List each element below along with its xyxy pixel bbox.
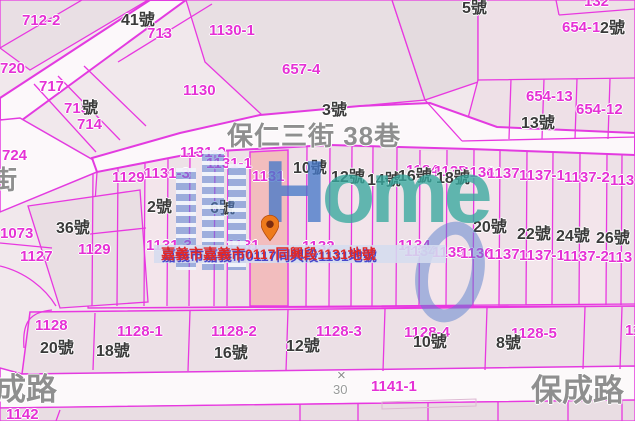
parcel-number-label: 712-2	[22, 13, 60, 29]
parcel-number-label: 113	[610, 173, 634, 189]
parcel-number-label: 654-1	[562, 20, 600, 36]
parcel-number-label: 1131-1	[206, 156, 252, 172]
house-number-label: 14號	[367, 173, 401, 190]
house-number-label: 10號	[293, 161, 327, 178]
selected-parcel-caption: 嘉義市嘉義市0117同興段1131地號	[154, 244, 376, 264]
house-number-label: 8號	[496, 336, 521, 353]
house-number-label: 16號	[214, 346, 248, 363]
parcel-number-label: 654-13	[526, 89, 573, 105]
parcel-number-label: 1137-1	[519, 168, 565, 184]
parcel-number-label: 113	[608, 250, 632, 266]
selected-parcel-caption-band: 嘉義市嘉義市0117同興段1131地號	[154, 245, 446, 263]
parcel-number-label: 1128-1	[117, 324, 163, 340]
parcel-number-label: 720	[0, 61, 25, 77]
house-number-label: 2號	[600, 21, 625, 38]
house-number-label: 18號	[96, 344, 130, 361]
parcel-number-label: 714	[77, 117, 102, 133]
parcel-number-label: 1073	[0, 226, 33, 242]
parcel-number-label: 1127	[20, 249, 53, 265]
parcel-number-label: 1141-1	[371, 379, 417, 395]
house-number-label: 20號	[40, 341, 74, 358]
house-number-label: 41號	[121, 13, 155, 30]
parcel-number-label: 654-12	[576, 102, 623, 118]
house-number-label: 12號	[331, 170, 365, 187]
parcel-number-label: 717	[39, 79, 64, 95]
parcel-number-label: 1131-3	[144, 166, 190, 182]
house-number-label: 20號	[473, 220, 507, 237]
street-name-left-partial: 街	[0, 160, 17, 197]
parcel-labels-layer: 712-27137207177157147241130-11130657-413…	[0, 0, 635, 421]
house-number-label: 10號	[413, 335, 447, 352]
parcel-number-label: 1137-2	[564, 170, 610, 186]
parcel-number-label: 1137-1	[519, 248, 565, 264]
survey-point-number: 30	[333, 382, 347, 397]
location-pin-icon[interactable]	[261, 214, 279, 242]
house-number-label: 5號	[462, 1, 487, 18]
parcel-number-label: 11	[625, 323, 635, 339]
parcel-number-label: 1128-3	[316, 324, 362, 340]
parcel-number-label: 1131	[252, 169, 285, 185]
parcel-number-label: 132	[584, 0, 609, 10]
parcel-number-label: 1137	[487, 166, 520, 182]
parcel-number-label: 1128	[35, 318, 68, 334]
house-number-label: 6號	[210, 201, 235, 218]
house-number-label: 18號	[436, 171, 470, 188]
cadastral-map[interactable]: 712-27137207177157147241130-11130657-413…	[0, 0, 635, 421]
house-number-label: 22號	[517, 227, 551, 244]
street-name-baoren-3rd: 保仁三街 38巷	[227, 116, 401, 153]
parcel-number-label: 1129	[78, 242, 111, 258]
parcel-number-label: 1142	[6, 407, 39, 421]
house-number-label: 16號	[398, 169, 432, 186]
house-number-label: 2號	[147, 200, 172, 217]
house-number-label: 12號	[286, 339, 320, 356]
house-number-label: 號	[82, 101, 98, 118]
parcel-number-label: 1137	[487, 247, 520, 263]
parcel-number-label: 1130-1	[209, 23, 255, 39]
house-number-label: 26號	[596, 231, 630, 248]
house-number-label: 36號	[56, 221, 90, 238]
road-name-baocheng-left: 成路	[0, 364, 57, 409]
house-number-label: 13號	[521, 116, 555, 133]
road-name-baocheng-right: 保成路	[531, 365, 624, 410]
parcel-number-label: 1137-2	[563, 249, 609, 265]
parcel-number-label: 1128-2	[211, 324, 257, 340]
parcel-number-label: 1130	[183, 83, 216, 99]
parcel-number-label: 657-4	[282, 62, 320, 78]
house-number-label: 24號	[556, 229, 590, 246]
parcel-number-label: 1129	[112, 170, 145, 186]
